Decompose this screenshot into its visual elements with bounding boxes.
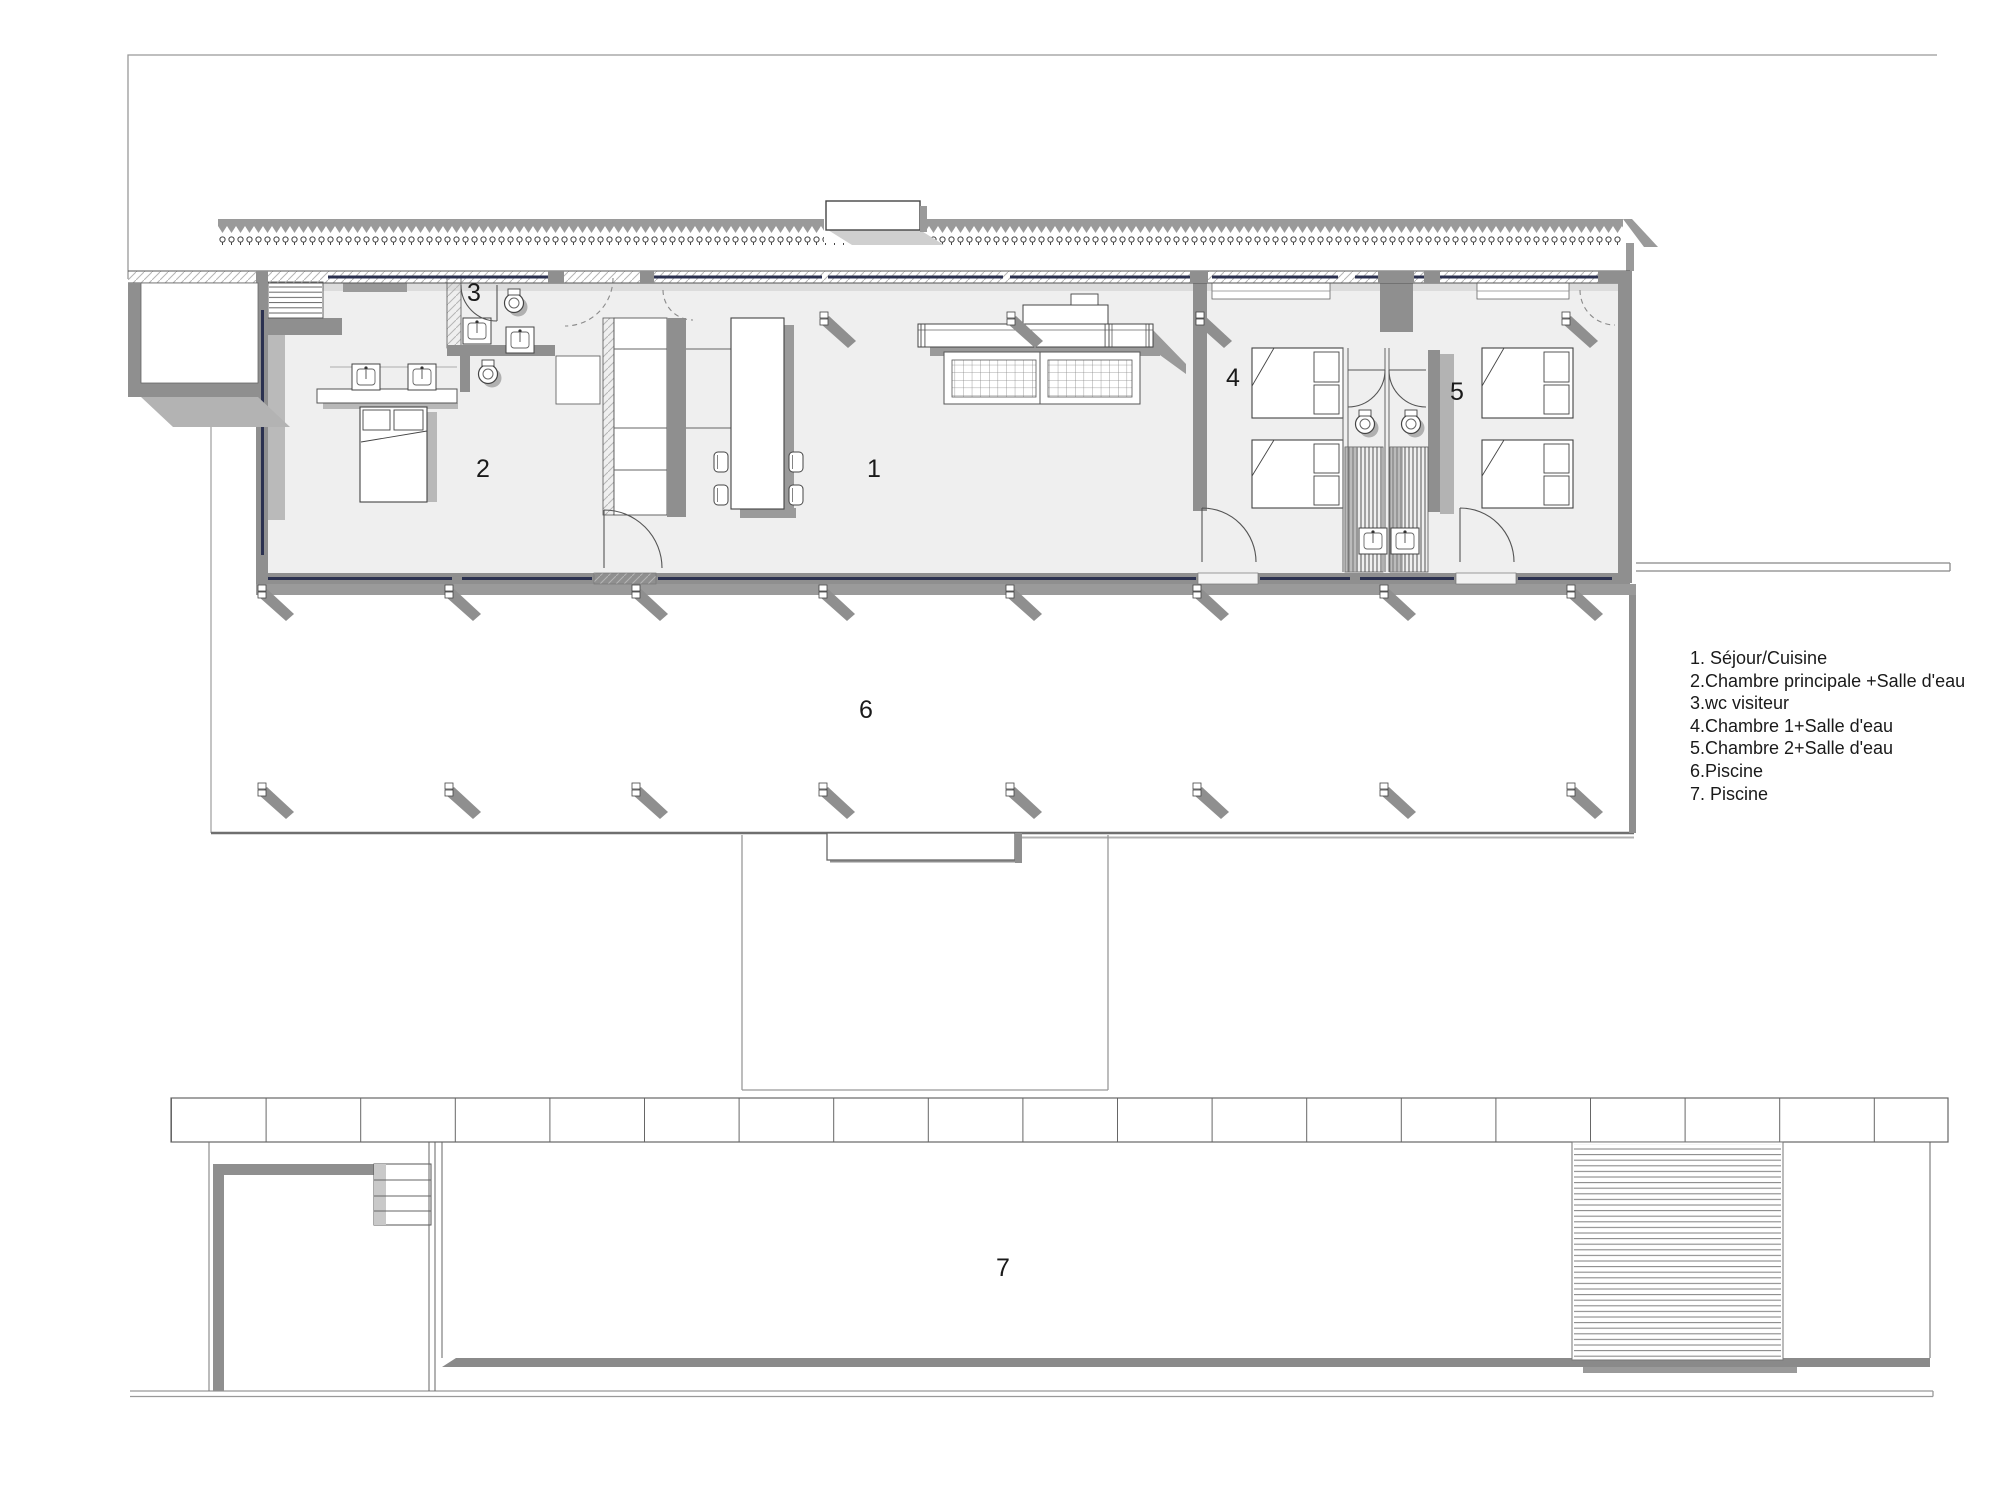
bed [1252, 348, 1343, 418]
legend-item-3: 3.wc visiteur [1690, 692, 1965, 715]
legend-item-7: 7. Piscine [1690, 783, 1965, 806]
pool-house [209, 1142, 435, 1391]
main-building [128, 271, 1636, 621]
legend: 1. Séjour/Cuisine 2.Chambre principale +… [1690, 647, 1965, 805]
south-wall [256, 573, 1636, 621]
legend-item-1: 1. Séjour/Cuisine [1690, 647, 1965, 670]
bed [1482, 440, 1573, 508]
legend-item-2: 2.Chambre principale +Salle d'eau [1690, 670, 1965, 693]
rug-seat [1040, 352, 1140, 404]
entry-louvres [268, 282, 323, 318]
sink-icon [463, 318, 491, 344]
terrace-columns [258, 783, 1603, 819]
room-label-piscine: 7 [996, 1254, 1010, 1282]
pool-area [171, 1098, 1948, 1391]
room-label-chambre-1: 4 [1226, 364, 1240, 392]
pool-deck [1572, 1142, 1783, 1360]
stool [789, 485, 803, 505]
bed [1482, 348, 1573, 418]
stool [714, 485, 728, 505]
garden-wall-lines [1636, 563, 1950, 571]
sink-icon [1359, 528, 1387, 554]
stool [789, 452, 803, 472]
room-label-wc: 3 [467, 279, 481, 307]
bed-master [360, 407, 437, 502]
sink-icon [352, 364, 380, 390]
legend-item-4: 4.Chambre 1+Salle d'eau [1690, 715, 1965, 738]
room-label-chambre-2: 5 [1450, 378, 1464, 406]
sink-icon [1391, 528, 1419, 554]
louvre-shadow [268, 318, 342, 335]
east-wall [1618, 271, 1632, 583]
room-label-chambre-principale: 2 [476, 455, 490, 483]
room-label-sejour: 1 [867, 455, 881, 483]
sink-icon [506, 327, 534, 353]
legend-item-6: 6.Piscine [1690, 760, 1965, 783]
terrace-step [827, 833, 1022, 863]
roof-skylight [824, 201, 944, 245]
rug-seat [944, 352, 1044, 404]
paver-band [171, 1098, 1948, 1142]
legend-item-5: 5.Chambre 2+Salle d'eau [1690, 737, 1965, 760]
bed [1252, 440, 1343, 508]
pool-house-steps [374, 1164, 431, 1225]
pool-path [742, 835, 1108, 1090]
room-label-terrasse: 6 [859, 696, 873, 724]
stool [714, 452, 728, 472]
floor-plan-canvas: 1 2 3 4 5 6 7 1. Séjour/Cuisine 2.Chambr… [0, 0, 2000, 1486]
sink-icon [408, 364, 436, 390]
roof-edge [218, 201, 1658, 271]
north-wall [128, 271, 1630, 283]
